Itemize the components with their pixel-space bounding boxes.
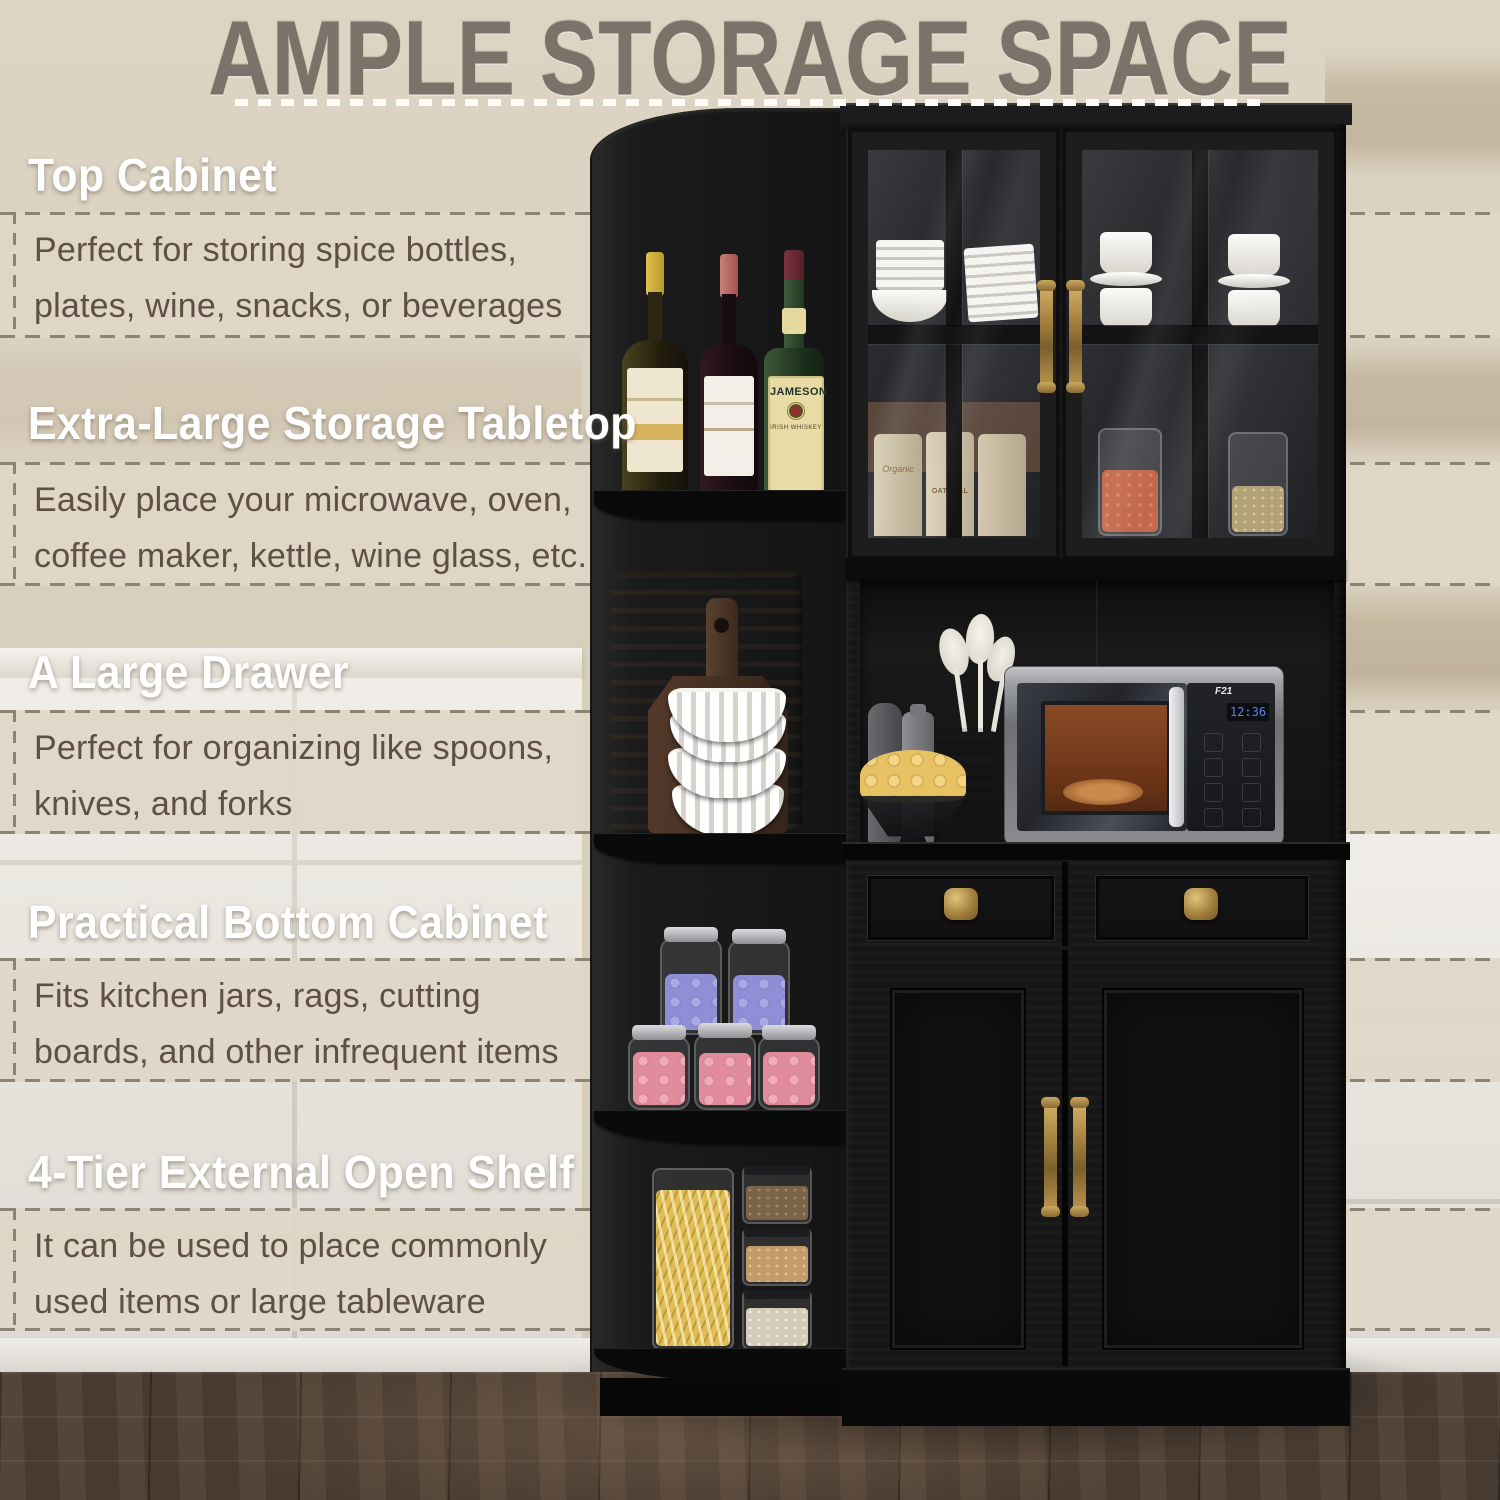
microwave-handle (1169, 687, 1184, 827)
heading-top-cabinet: Top Cabinet (28, 148, 277, 202)
grinder-knob (910, 704, 926, 716)
heading-open-shelf: 4-Tier External Open Shelf (28, 1145, 574, 1199)
main-cabinet: Organic OATMEAL (0, 0, 1500, 1500)
glass-right (1082, 150, 1318, 538)
food-plate (1063, 779, 1143, 805)
lower-door-handle-left (1044, 1100, 1057, 1214)
cabinet-door-panel-right (1102, 988, 1304, 1350)
upper-door-handle-right (1069, 283, 1082, 390)
microwave-display: 12:36 (1227, 703, 1269, 721)
glass-left: Organic OATMEAL (868, 150, 1040, 538)
upper-door-handle-left (1040, 283, 1053, 390)
cabinet-plinth (842, 1368, 1350, 1426)
touch-button (1204, 783, 1223, 802)
microwave: F21 12:36 (1004, 666, 1284, 846)
snack-puffs (860, 750, 966, 802)
infographic-canvas: Perfect for storing spice bottles, plate… (0, 0, 1500, 1500)
glass-reflection (1082, 150, 1318, 538)
heading-bottom-cabinet: Practical Bottom Cabinet (28, 895, 548, 949)
touch-button (1242, 808, 1261, 827)
touch-button (1204, 758, 1223, 777)
hutch-shelf-board (846, 558, 1346, 580)
microwave-buttons (1197, 733, 1267, 823)
drawer-divider (1062, 862, 1068, 946)
touch-button (1242, 733, 1261, 752)
microwave-time: 12:36 (1230, 705, 1266, 719)
cabinet-door-divider (1062, 950, 1068, 1366)
microwave-window (1041, 701, 1171, 815)
title-underline-dashed (235, 99, 1267, 106)
touch-button (1242, 758, 1261, 777)
drawer-knob-right (1184, 888, 1218, 920)
heading-drawer: A Large Drawer (28, 645, 349, 699)
drawer-knob-left (944, 888, 978, 920)
lower-door-handle-right (1073, 1100, 1086, 1214)
cabinet-door-panel-left (890, 988, 1026, 1350)
touch-button (1242, 783, 1261, 802)
microwave-badge: F21 (1215, 686, 1232, 697)
tabletop (842, 842, 1350, 860)
touch-button (1204, 733, 1223, 752)
touch-button (1204, 808, 1223, 827)
microwave-control-panel: F21 12:36 (1187, 683, 1275, 831)
heading-tabletop: Extra-Large Storage Tabletop (28, 396, 637, 450)
glass-reflection (868, 150, 1040, 538)
spoon-stem (978, 660, 983, 732)
